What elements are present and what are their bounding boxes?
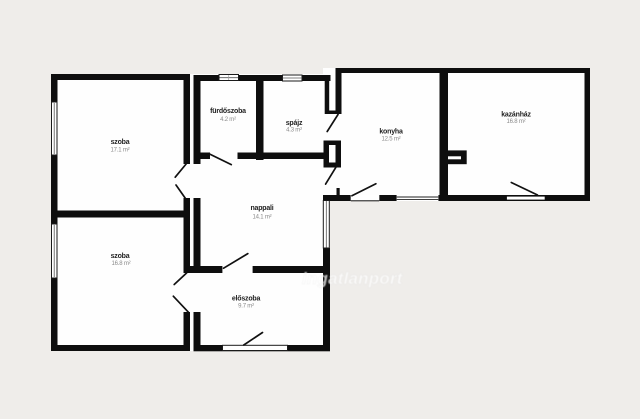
svg-text:szoba: szoba [111,253,130,260]
svg-text:előszoba: előszoba [232,296,261,303]
svg-text:spájz: spájz [286,120,303,127]
svg-text:16.8 m²: 16.8 m² [112,261,131,267]
svg-text:9.7 m²: 9.7 m² [238,304,254,310]
svg-text:szoba: szoba [111,139,130,146]
svg-text:17.1 m²: 17.1 m² [111,148,130,154]
svg-text:16.8 m²: 16.8 m² [507,119,526,125]
svg-text:ingatlanport: ingatlanport [302,269,404,288]
svg-text:4.2 m²: 4.2 m² [220,117,236,123]
svg-text:14.1 m²: 14.1 m² [253,215,272,221]
svg-text:4.3 m²: 4.3 m² [286,128,302,134]
svg-text:12.5 m²: 12.5 m² [382,136,401,142]
svg-text:nappali: nappali [250,205,273,212]
svg-text:fürdőszoba: fürdőszoba [210,108,246,115]
svg-text:konyha: konyha [379,129,403,136]
svg-text:kazánház: kazánház [501,112,531,119]
